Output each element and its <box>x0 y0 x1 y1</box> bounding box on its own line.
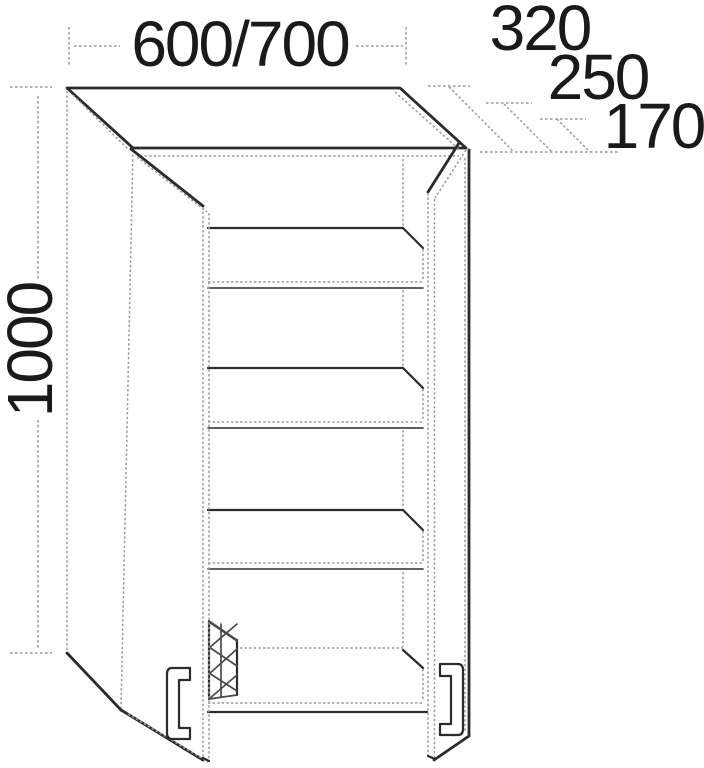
technical-drawing-page: 600/700 1000 320 250 170 <box>0 0 704 768</box>
basket-wire <box>209 649 237 674</box>
depth-dim-diagonal-250 <box>504 104 552 152</box>
shelf-right-edge <box>403 228 423 248</box>
left-door-handle <box>167 668 190 739</box>
depth-dimension: 320 250 170 <box>428 0 704 162</box>
right-door-handle <box>440 664 463 735</box>
depth-dim-diagonal-170 <box>557 119 590 152</box>
width-dimension: 600/700 <box>69 8 406 80</box>
height-dimension: 1000 <box>0 87 66 653</box>
left-door <box>121 149 209 762</box>
wire-basket <box>209 621 237 699</box>
cabinet-body <box>67 88 469 736</box>
cabinet-bottom-panel <box>208 648 427 712</box>
basket-wire <box>209 624 237 648</box>
basket-wire <box>209 673 237 691</box>
shelf-3 <box>208 510 423 569</box>
right-door-bottom-edge <box>434 736 469 760</box>
left-side-bottom-edge <box>67 653 121 710</box>
shelf-right-edge <box>403 510 423 530</box>
basket-wire <box>209 622 237 641</box>
left-door-top-inner-edge <box>137 157 207 212</box>
shelf-1 <box>208 228 423 288</box>
cabinet-technical-drawing: 600/700 1000 320 250 170 <box>0 0 704 768</box>
shelf-right-edge <box>403 368 423 388</box>
width-dimension-label: 600/700 <box>131 8 349 80</box>
depth-label-170: 170 <box>604 90 704 162</box>
cabinet-top-face <box>67 88 466 148</box>
right-door <box>428 143 469 760</box>
height-dimension-label: 1000 <box>0 282 66 417</box>
basket-wire <box>209 647 237 666</box>
bottom-right-edge <box>403 650 423 668</box>
front-left-edge <box>121 150 133 708</box>
left-door-top-edge <box>131 149 203 206</box>
shelf-2 <box>208 368 423 428</box>
right-door-top-edge <box>428 143 459 192</box>
